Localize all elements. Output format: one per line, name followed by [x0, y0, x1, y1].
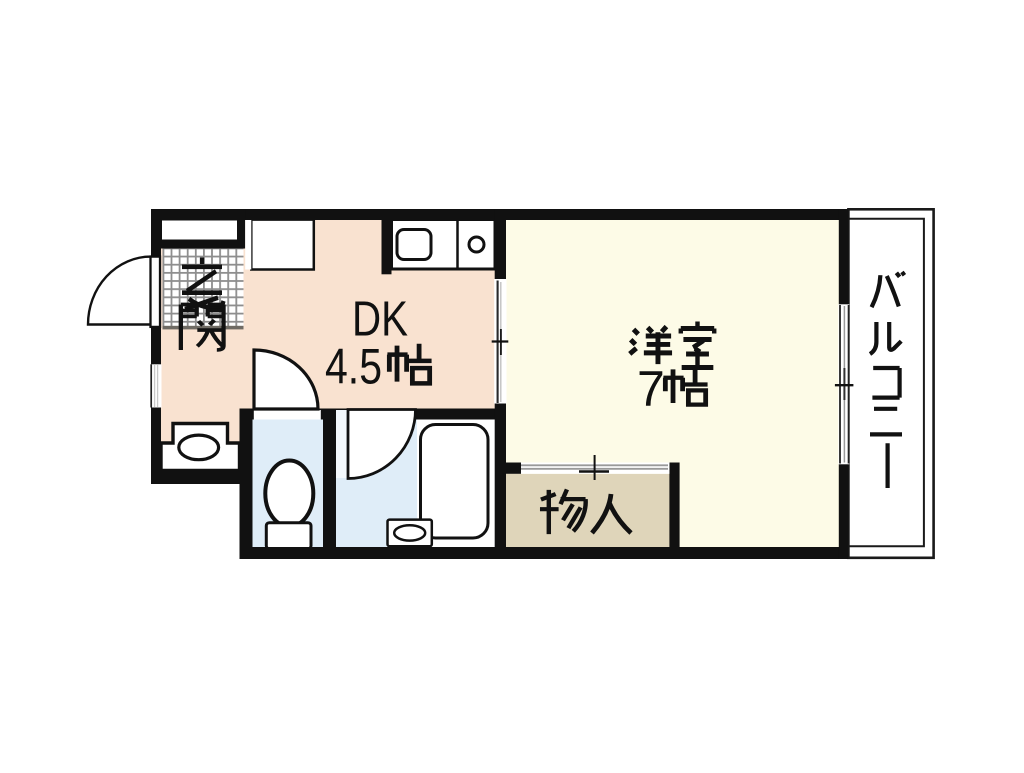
svg-text:4.5: 4.5 — [325, 339, 382, 395]
svg-text:7: 7 — [637, 361, 665, 417]
